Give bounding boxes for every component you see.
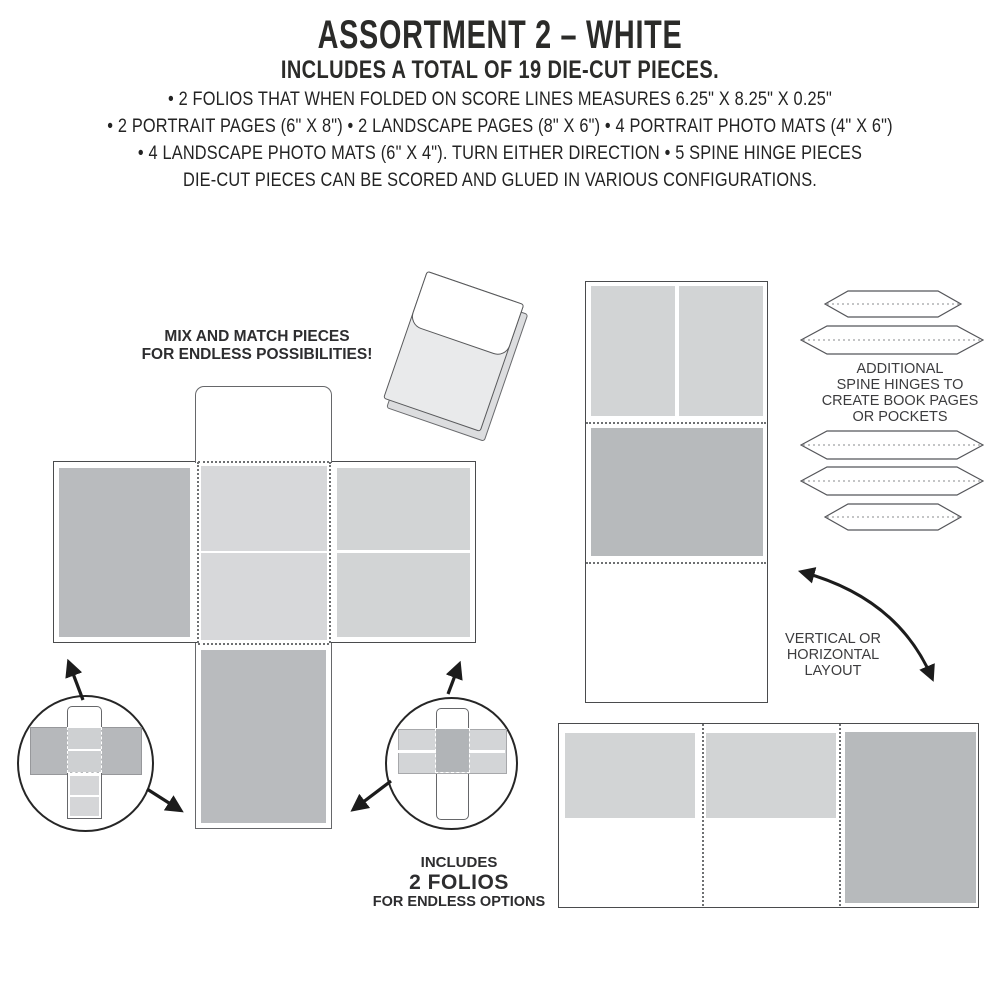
vertical-layout-diagram xyxy=(585,281,768,703)
detail-line-4: DIE-CUT PIECES CAN BE SCORED AND GLUED I… xyxy=(0,170,1000,192)
folio-top-flap xyxy=(195,386,332,463)
detail-line-2: • 2 PORTRAIT PAGES (6" X 8") • 2 LANDSCA… xyxy=(0,116,1000,138)
folio-center-panel-top xyxy=(201,466,327,551)
horizontal-layout-diagram xyxy=(558,723,979,908)
page-title: ASSORTMENT 2 – WHITE xyxy=(0,13,1000,58)
mini-cross-bottom-cell-2 xyxy=(70,797,99,816)
spine-hinge-2 xyxy=(800,325,984,355)
folded-config-circle-left xyxy=(17,695,154,832)
includes-label: INCLUDES 2 FOLIOS FOR ENDLESS OPTIONS xyxy=(359,854,559,910)
mix-match-label: MIX AND MATCH PIECES FOR ENDLESS POSSIBI… xyxy=(127,328,387,364)
spine-hinge-4 xyxy=(800,466,984,496)
score-line-top xyxy=(198,461,329,463)
mini-cross-top-flap xyxy=(67,706,102,728)
mini-cross-bottom-cell-1 xyxy=(70,776,99,795)
arrow-right-circle-down-left xyxy=(354,781,391,809)
orientation-label: VERTICAL OR HORIZONTAL LAYOUT xyxy=(763,631,903,679)
folio-left-panel xyxy=(59,468,190,637)
vlayout-score-line-1 xyxy=(586,422,766,424)
folio-right-panel-top xyxy=(337,468,470,550)
spine-hinge-3 xyxy=(800,430,984,460)
folio-center-panel-bottom xyxy=(201,553,327,640)
arrow-left-circle-down-right xyxy=(147,789,180,810)
vlayout-panel-top-right xyxy=(679,286,763,416)
hlayout-panel-right xyxy=(845,732,976,903)
detail-line-3: • 4 LANDSCAPE PHOTO MATS (6" X 4"). TURN… xyxy=(0,143,1000,165)
arrow-right-circle-up xyxy=(448,665,459,694)
hlayout-score-line-2 xyxy=(839,724,841,906)
score-line-left xyxy=(197,462,199,643)
spine-hinge-5 xyxy=(824,503,962,531)
mini-cross-center-dashed xyxy=(67,727,102,773)
vlayout-panel-top-left xyxy=(591,286,675,416)
folded-folio-illustration xyxy=(383,271,526,433)
folio-bottom-panel xyxy=(201,650,326,823)
hlayout-panel-left xyxy=(565,733,695,818)
mini-cross-center-dashed xyxy=(435,728,470,773)
folded-config-circle-right xyxy=(385,697,518,830)
infographic-page: ASSORTMENT 2 – WHITE INCLUDES A TOTAL OF… xyxy=(0,0,1000,1000)
hlayout-panel-middle xyxy=(706,733,836,818)
detail-line-1: • 2 FOLIOS THAT WHEN FOLDED ON SCORE LIN… xyxy=(0,89,1000,111)
vlayout-panel-middle xyxy=(591,428,763,556)
spine-hinges-label: ADDITIONAL SPINE HINGES TO CREATE BOOK P… xyxy=(810,361,990,425)
hlayout-score-line-1 xyxy=(702,724,704,906)
folio-right-panel-bottom xyxy=(337,553,470,637)
spine-hinge-1 xyxy=(824,290,962,318)
score-line-bottom xyxy=(198,643,329,645)
vlayout-score-line-2 xyxy=(586,562,766,564)
page-subtitle: INCLUDES A TOTAL OF 19 DIE-CUT PIECES. xyxy=(0,56,1000,85)
score-line-right xyxy=(329,462,331,643)
